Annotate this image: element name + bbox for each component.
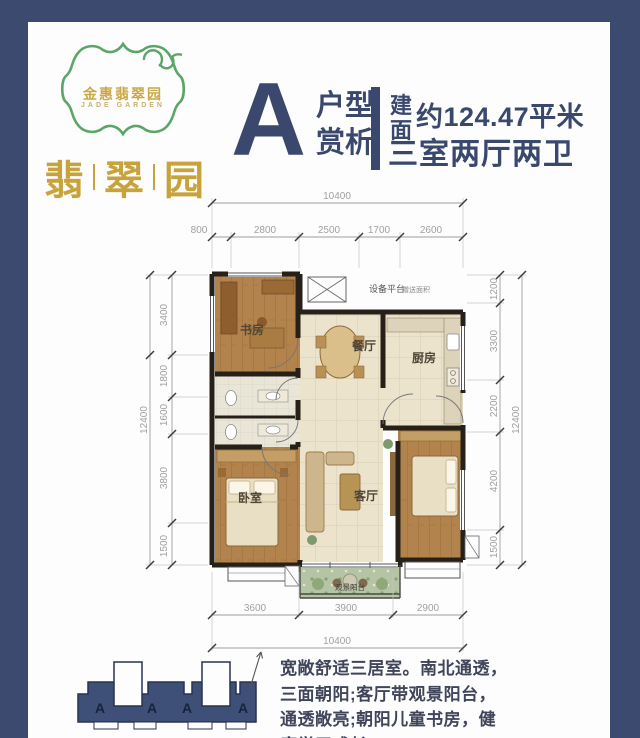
dim-top-3: 1700	[368, 225, 391, 236]
plant-icon	[307, 535, 317, 545]
dim-left-4: 1500	[159, 534, 170, 557]
room-label-kitchen: 厨房	[412, 350, 436, 365]
balcony-label: 观景阳台	[335, 582, 365, 592]
sink-icon	[447, 334, 459, 350]
dim-bottom-1: 3900	[335, 603, 358, 614]
dim-top-4: 2600	[420, 225, 443, 236]
room-label-bedroom: 卧室	[238, 490, 262, 505]
dim-right-2: 2200	[489, 394, 500, 417]
footprint-unit-a: A	[238, 700, 248, 716]
plant-icon	[376, 578, 388, 590]
dim-left-1: 1800	[159, 364, 170, 387]
equipment-note: 赠送面积	[402, 285, 430, 294]
dim-right-0: 1200	[489, 277, 500, 300]
dim-left-3: 3800	[159, 466, 170, 489]
dim-top-total: 10400	[323, 191, 351, 202]
dim-left-0: 3400	[159, 303, 170, 326]
plant-icon	[312, 578, 324, 590]
dim-top-0: 800	[191, 225, 208, 236]
footprint-unit-a: A	[95, 700, 105, 716]
dim-top-2: 2500	[318, 225, 341, 236]
building-footprint: A A A A	[78, 652, 263, 729]
stair-core	[202, 662, 230, 706]
dim-left-total: 12400	[139, 406, 150, 434]
room-label-dining: 餐厅	[352, 338, 376, 353]
footprint-unit-a: A	[147, 700, 157, 716]
equipment-label: 设备平台	[369, 283, 405, 294]
dim-bottom-0: 3600	[244, 603, 267, 614]
plant-icon	[383, 439, 393, 449]
room-label-study: 书房	[240, 322, 264, 337]
description-line: 通透敞亮;朝阳儿童书房，健	[280, 707, 608, 733]
toilet-icon	[226, 425, 237, 440]
description-line: 康学习成长。	[280, 733, 608, 738]
description-line: 三面朝阳;客厅带观景阳台，	[280, 682, 608, 708]
dim-bottom-total: 10400	[323, 636, 351, 647]
dim-bottom-2: 2900	[417, 603, 440, 614]
dim-right-total: 12400	[511, 406, 522, 434]
description-line: 宽敞舒适三居室。南北通透，	[280, 656, 608, 682]
footprint-unit-a: A	[182, 700, 192, 716]
description-block: 宽敞舒适三居室。南北通透， 三面朝阳;客厅带观景阳台， 通透敞亮;朝阳儿童书房，…	[280, 656, 608, 738]
dim-top-1: 2800	[254, 225, 277, 236]
dim-right-3: 4200	[489, 469, 500, 492]
toilet-icon	[226, 391, 237, 406]
dim-right-1: 3300	[489, 329, 500, 352]
dim-right-4: 1500	[489, 535, 500, 558]
tv-stand-icon	[390, 452, 396, 516]
flyer-page: 金惠翡翠园 JADE GARDEN 翡 翠 园 A 户型 赏析 建 面 约124…	[0, 0, 640, 738]
stair-core	[114, 662, 142, 706]
floor-plan-canvas: 书房 餐厅 厨房 卧室 客厅 设备平台 赠送面积 观景阳台	[0, 0, 640, 738]
dim-left-2: 1600	[159, 403, 170, 426]
sofa-icon	[306, 452, 324, 532]
room-label-living: 客厅	[353, 488, 378, 503]
